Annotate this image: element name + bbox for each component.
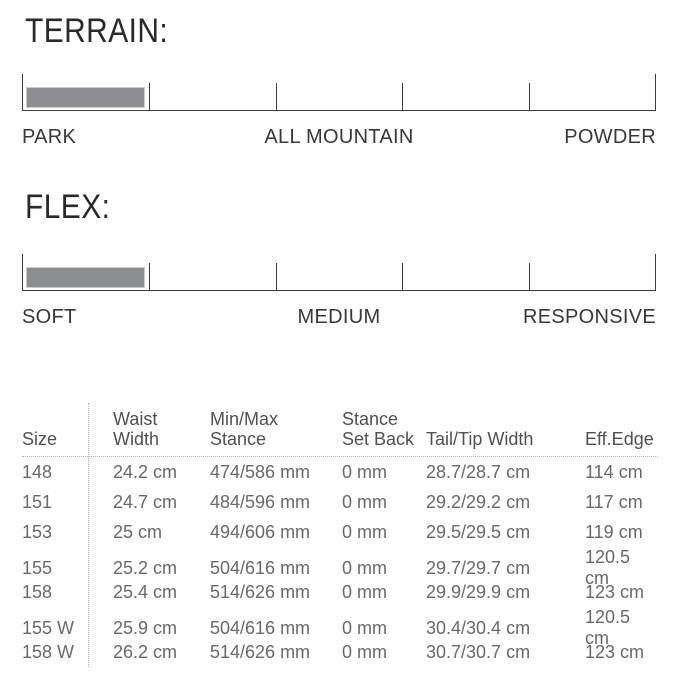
cell-waist: 24.7 cm	[113, 492, 210, 513]
table-row: 155 25.2 cm 504/616 mm 0 mm 29.7/29.7 cm…	[22, 547, 658, 577]
cell-tailtip: 29.2/29.2 cm	[426, 492, 585, 513]
spec-table: Size Waist Width Min/Max Stance Stance S…	[22, 403, 658, 667]
scale-tick	[276, 83, 277, 110]
cell-stance: 514/626 mm	[210, 642, 342, 663]
terrain-heading: TERRAIN:	[25, 14, 168, 48]
cell-stance: 514/626 mm	[210, 582, 342, 603]
terrain-label-all-mountain: ALL MOUNTAIN	[264, 126, 413, 149]
terrain-label-park: PARK	[22, 126, 76, 149]
cell-size: 158 W	[22, 642, 113, 663]
cell-effedge: 119 cm	[585, 522, 658, 543]
flex-level-bar	[26, 267, 145, 288]
table-row: 155 W 25.9 cm 504/616 mm 0 mm 30.4/30.4 …	[22, 607, 658, 637]
scale-tick	[529, 83, 530, 110]
cell-tailtip: 29.7/29.7 cm	[426, 558, 585, 579]
flex-scale-labels: SOFT MEDIUM RESPONSIVE	[22, 306, 656, 329]
table-column-divider	[88, 403, 89, 667]
cell-setback: 0 mm	[342, 618, 426, 639]
column-header-min-max-stance: Min/Max Stance	[210, 409, 342, 449]
flex-heading: FLEX:	[25, 190, 110, 224]
cell-waist: 25 cm	[113, 522, 210, 543]
cell-tailtip: 28.7/28.7 cm	[426, 462, 585, 483]
scale-tick	[149, 83, 150, 110]
cell-tailtip: 29.9/29.9 cm	[426, 582, 585, 603]
flex-label-responsive: RESPONSIVE	[523, 306, 656, 329]
scale-tick	[22, 74, 23, 110]
column-header-waist-width: Waist Width	[113, 409, 210, 449]
scale-tick	[529, 263, 530, 290]
cell-size: 158	[22, 582, 113, 603]
cell-setback: 0 mm	[342, 642, 426, 663]
cell-effedge: 123 cm	[585, 642, 658, 663]
terrain-scale	[22, 74, 656, 111]
cell-waist: 25.2 cm	[113, 558, 210, 579]
cell-stance: 484/596 mm	[210, 492, 342, 513]
cell-size: 155	[22, 558, 113, 579]
column-header-size: Size	[22, 429, 113, 449]
cell-stance: 494/606 mm	[210, 522, 342, 543]
cell-stance: 504/616 mm	[210, 618, 342, 639]
cell-setback: 0 mm	[342, 462, 426, 483]
cell-stance: 474/586 mm	[210, 462, 342, 483]
scale-tick	[655, 74, 656, 110]
table-row: 158 W 26.2 cm 514/626 mm 0 mm 30.7/30.7 …	[22, 637, 658, 667]
scale-tick	[149, 263, 150, 290]
cell-setback: 0 mm	[342, 582, 426, 603]
cell-tailtip: 30.7/30.7 cm	[426, 642, 585, 663]
snowboard-spec-sheet: TERRAIN: PARK ALL MOUNTAIN POWDER FLEX: …	[0, 0, 680, 680]
cell-waist: 25.4 cm	[113, 582, 210, 603]
cell-waist: 26.2 cm	[113, 642, 210, 663]
cell-size: 151	[22, 492, 113, 513]
terrain-label-powder: POWDER	[564, 126, 656, 149]
cell-stance: 504/616 mm	[210, 558, 342, 579]
flex-label-soft: SOFT	[22, 306, 77, 329]
cell-size: 153	[22, 522, 113, 543]
table-row: 158 25.4 cm 514/626 mm 0 mm 29.9/29.9 cm…	[22, 577, 658, 607]
cell-waist: 24.2 cm	[113, 462, 210, 483]
scale-tick	[276, 263, 277, 290]
column-header-stance-set-back: Stance Set Back	[342, 409, 426, 449]
table-row: 153 25 cm 494/606 mm 0 mm 29.5/29.5 cm 1…	[22, 517, 658, 547]
table-row: 151 24.7 cm 484/596 mm 0 mm 29.2/29.2 cm…	[22, 487, 658, 517]
cell-size: 148	[22, 462, 113, 483]
cell-setback: 0 mm	[342, 492, 426, 513]
cell-effedge: 114 cm	[585, 462, 658, 483]
flex-scale	[22, 254, 656, 291]
scale-tick	[22, 254, 23, 290]
cell-setback: 0 mm	[342, 522, 426, 543]
cell-size: 155 W	[22, 618, 113, 639]
cell-tailtip: 30.4/30.4 cm	[426, 618, 585, 639]
column-header-eff-edge: Eff.Edge	[585, 429, 658, 449]
cell-effedge: 123 cm	[585, 582, 658, 603]
cell-setback: 0 mm	[342, 558, 426, 579]
terrain-scale-labels: PARK ALL MOUNTAIN POWDER	[22, 126, 656, 149]
table-row: 148 24.2 cm 474/586 mm 0 mm 28.7/28.7 cm…	[22, 457, 658, 487]
cell-waist: 25.9 cm	[113, 618, 210, 639]
scale-tick	[402, 263, 403, 290]
scale-tick	[402, 83, 403, 110]
cell-tailtip: 29.5/29.5 cm	[426, 522, 585, 543]
terrain-level-bar	[26, 87, 145, 108]
scale-tick	[655, 254, 656, 290]
column-header-tail-tip-width: Tail/Tip Width	[426, 429, 585, 449]
flex-label-medium: MEDIUM	[298, 306, 381, 329]
cell-effedge: 117 cm	[585, 492, 658, 513]
table-header-row: Size Waist Width Min/Max Stance Stance S…	[22, 403, 658, 457]
